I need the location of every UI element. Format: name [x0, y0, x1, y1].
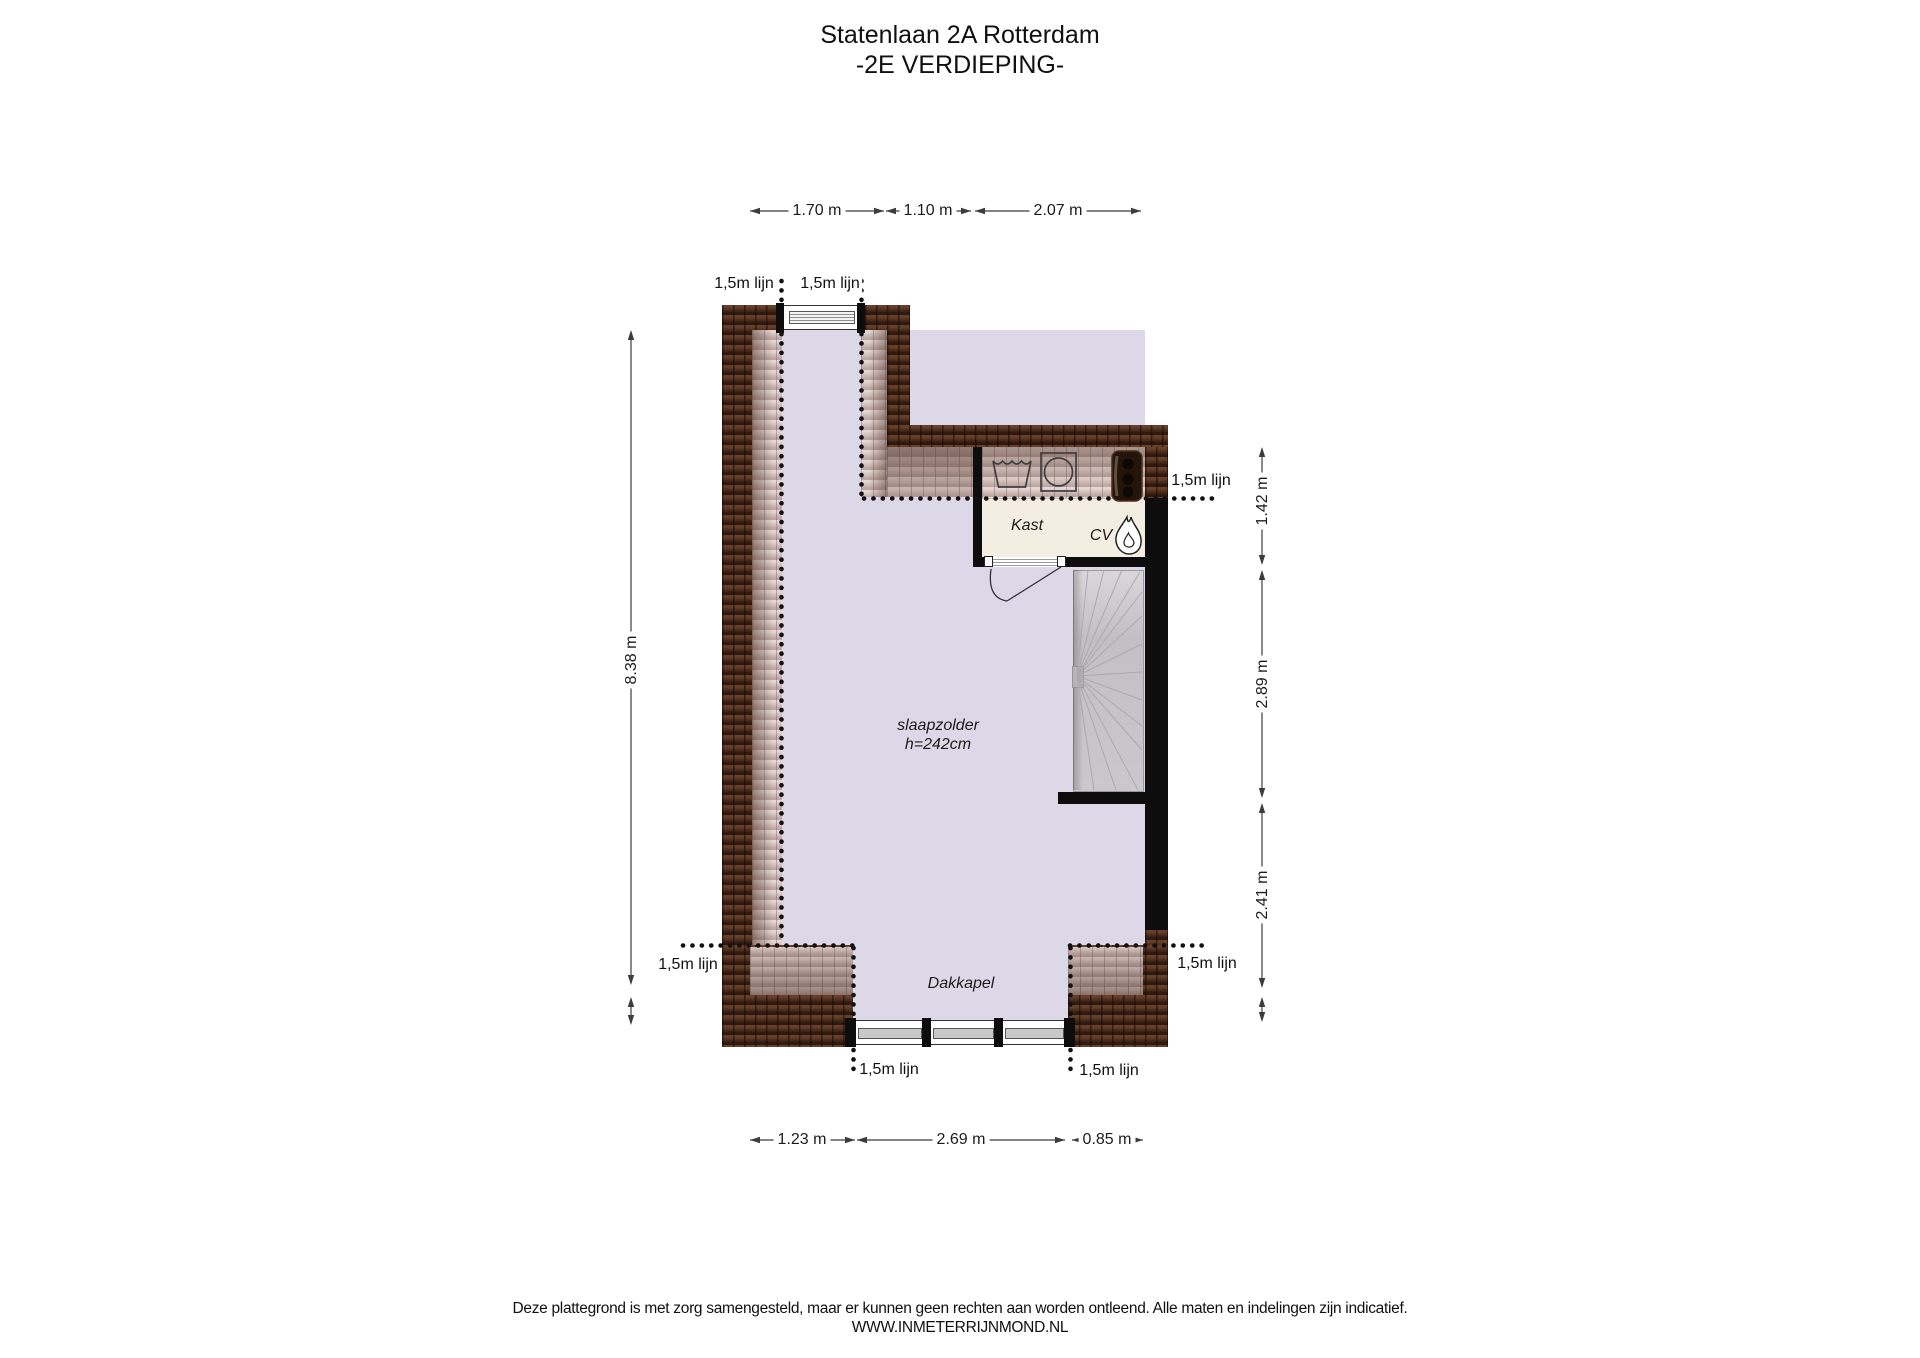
dimension-label-left: 8.38 m: [623, 632, 641, 689]
dimension-label-top: 1.70 m: [789, 202, 846, 220]
dimension-label-bottom: 2.69 m: [933, 1131, 990, 1149]
dimension-label-bottom: 1.23 m: [774, 1131, 831, 1149]
dimension-label-right: 2.89 m: [1254, 656, 1272, 713]
cv-label: CV: [1090, 527, 1112, 545]
floorplan-page: Statenlaan 2A Rotterdam -2E VERDIEPING-: [0, 0, 1920, 1358]
plan-linework: [0, 0, 1920, 1358]
boiler-icon: [1112, 451, 1142, 501]
flame-icon: [1116, 517, 1141, 554]
height-line-1-5m: [683, 281, 1213, 1078]
line15-label: 1,5m lijn: [857, 1061, 921, 1079]
dimension-label-right: 2.41 m: [1254, 867, 1272, 924]
dimension-lines: [631, 211, 1262, 1140]
room-label-slaapzolder: slaapzolder: [897, 717, 979, 735]
room-label-kast: Kast: [1011, 517, 1043, 535]
line15-label: 1,5m lijn: [656, 956, 720, 974]
closet-door: [990, 567, 1061, 601]
room-height-label: h=242cm: [905, 736, 971, 754]
dimension-label-top: 1.10 m: [900, 202, 957, 220]
line15-label: 1,5m lijn: [1077, 1062, 1141, 1080]
line15-label: 1,5m lijn: [798, 275, 862, 293]
dimension-arrowheads: [628, 208, 1265, 1143]
dimension-label-right: 1.42 m: [1254, 473, 1272, 530]
line15-label: 1,5m lijn: [1169, 472, 1233, 490]
line15-label: 1,5m lijn: [1175, 955, 1239, 973]
washing-machine-icon: [1041, 453, 1076, 491]
room-label-dakkapel: Dakkapel: [928, 975, 995, 993]
staircase-treads: [1077, 570, 1142, 790]
footer-website: WWW.INMETERRIJNMOND.NL: [0, 1319, 1920, 1337]
dimension-label-bottom: 0.85 m: [1079, 1131, 1136, 1149]
laundry-tub-icon: [993, 461, 1031, 487]
line15-label: 1,5m lijn: [712, 275, 776, 293]
dimension-label-top: 2.07 m: [1030, 202, 1087, 220]
footer-disclaimer: Deze plattegrond is met zorg samengestel…: [0, 1300, 1920, 1318]
